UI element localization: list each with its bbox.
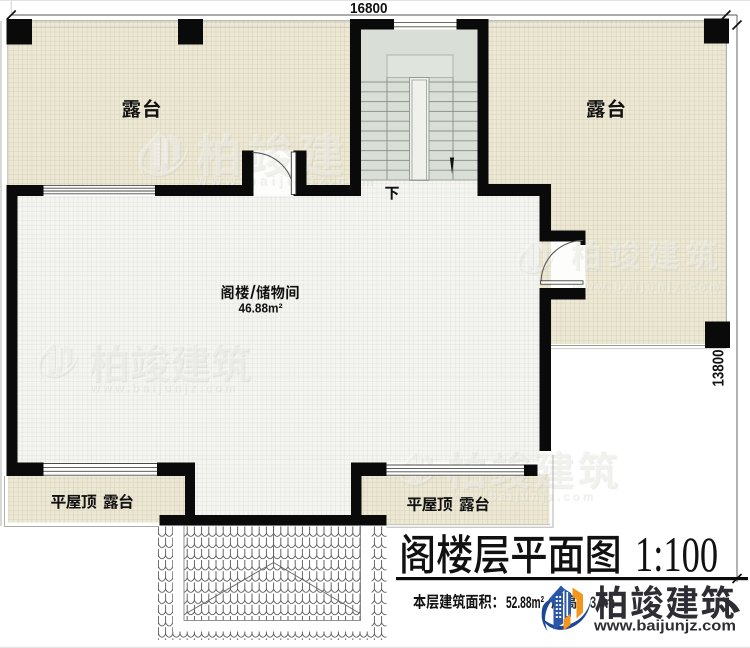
svg-text:46.88m²: 46.88m² [239, 301, 284, 316]
svg-text:16800: 16800 [350, 0, 388, 17]
svg-text:www.baijunjz.com: www.baijunjz.com [593, 618, 736, 635]
svg-text:www.baijunjz.com: www.baijunjz.com [89, 383, 237, 395]
svg-text:www.baijunjz.com: www.baijunjz.com [571, 282, 722, 294]
svg-text:13800: 13800 [711, 350, 728, 387]
svg-text:1:100: 1:100 [635, 528, 718, 583]
svg-text:52.88m²: 52.88m² [506, 593, 544, 612]
